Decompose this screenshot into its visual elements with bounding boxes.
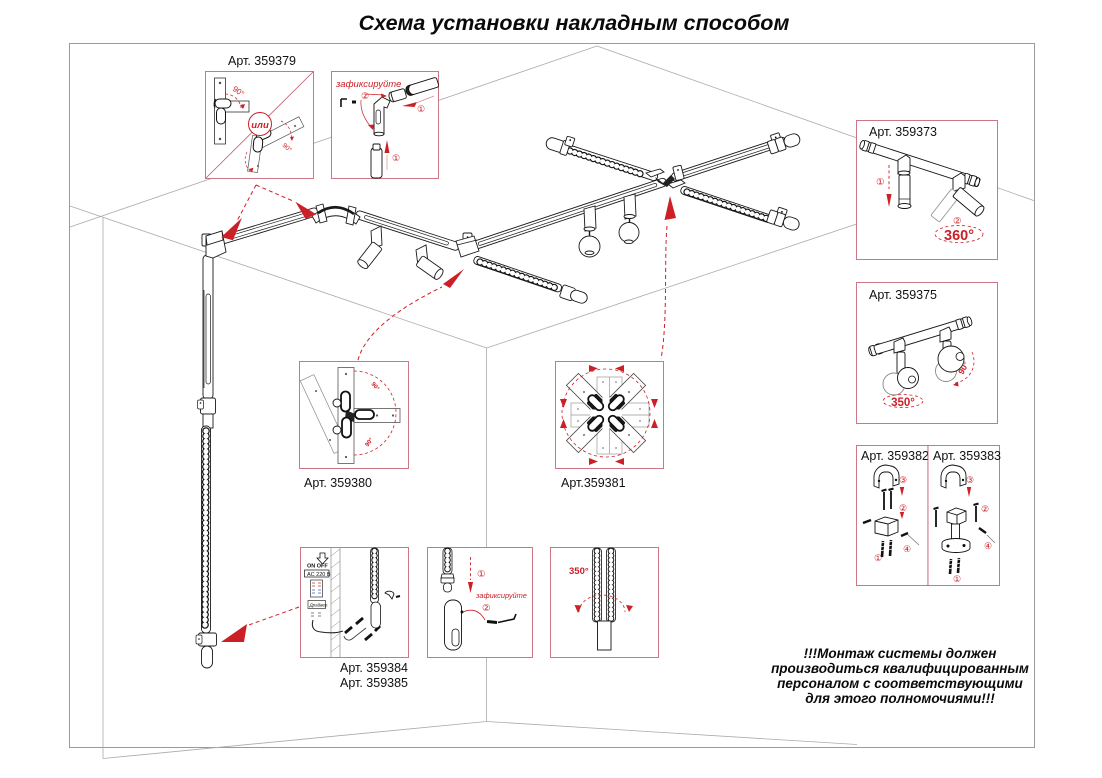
svg-text:Арт. 359379: Арт. 359379 xyxy=(228,54,296,68)
svg-text:②: ② xyxy=(482,603,491,614)
svg-text:!!!Монтаж системы должен: !!!Монтаж системы должен xyxy=(804,646,997,661)
svg-text:для этого полномочиями!!!: для этого полномочиями!!! xyxy=(805,691,995,706)
svg-text:②: ② xyxy=(361,91,369,101)
svg-text:Арт. 359384: Арт. 359384 xyxy=(340,661,408,675)
svg-text:②: ② xyxy=(981,504,989,514)
svg-text:①: ① xyxy=(874,553,882,563)
svg-text:①: ① xyxy=(876,177,885,188)
svg-text:персоналом с соответствующими: персоналом с соответствующими xyxy=(777,676,1023,691)
svg-text:Арт. 359383: Арт. 359383 xyxy=(933,449,1001,463)
svg-text:②: ② xyxy=(899,503,907,513)
svg-text:Арт.359381: Арт.359381 xyxy=(561,476,626,490)
svg-text:зафиксируйте: зафиксируйте xyxy=(335,79,401,90)
svg-text:зафиксируйте: зафиксируйте xyxy=(475,591,527,600)
svg-text:350°: 350° xyxy=(569,566,589,577)
svg-text:①: ① xyxy=(953,574,961,584)
svg-text:ON OFF: ON OFF xyxy=(307,564,328,570)
svg-text:④: ④ xyxy=(903,544,911,554)
svg-text:Арт. 359385: Арт. 359385 xyxy=(340,676,408,690)
svg-text:①: ① xyxy=(477,569,486,580)
svg-text:Арт. 359382: Арт. 359382 xyxy=(861,449,929,463)
svg-text:или: или xyxy=(251,120,269,131)
svg-text:AC 220 В: AC 220 В xyxy=(307,572,331,578)
svg-text:①: ① xyxy=(417,104,425,114)
svg-text:③: ③ xyxy=(899,475,907,485)
svg-text:Арт. 359380: Арт. 359380 xyxy=(304,476,372,490)
svg-text:Схема установки накладным спос: Схема установки накладным способом xyxy=(359,11,790,35)
svg-text:①: ① xyxy=(392,153,400,163)
svg-text:④: ④ xyxy=(984,541,992,551)
svg-text:Драйвер: Драйвер xyxy=(309,602,328,608)
svg-text:③: ③ xyxy=(966,475,974,485)
svg-text:Арт. 359375: Арт. 359375 xyxy=(869,288,937,302)
svg-text:350°: 350° xyxy=(891,397,915,409)
svg-text:производиться квалифицированны: производиться квалифицированным xyxy=(771,661,1029,676)
svg-text:360°: 360° xyxy=(944,228,974,244)
svg-text:Арт. 359373: Арт. 359373 xyxy=(869,125,937,139)
